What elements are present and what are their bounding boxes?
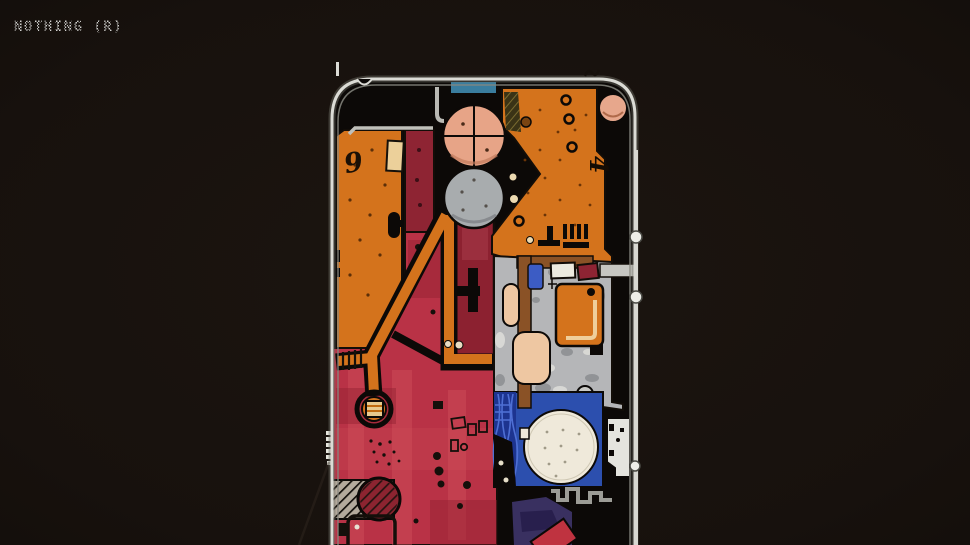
center-maroon-block: [456, 216, 494, 356]
teal-bar: [450, 81, 497, 94]
selfie-camera-peach: [599, 94, 627, 122]
rail-ball: [630, 231, 642, 243]
nothing-teaser-image: NOTHING (R): [0, 0, 970, 545]
rail-ball: [630, 291, 642, 303]
flex-connector: [357, 392, 391, 426]
handwritten-4: 4: [584, 156, 613, 173]
nothing-logo: NOTHING (R): [14, 19, 123, 35]
antenna-tick: [336, 62, 339, 76]
lens-gray-circle: [444, 168, 504, 228]
phone-internals-sketch: 9: [0, 0, 970, 545]
rail-ball: [630, 461, 640, 471]
right-orange-pcb: 4: [492, 88, 613, 262]
maroon-strip: [405, 130, 434, 232]
nothing-logo-text: NOTHING (R): [14, 19, 123, 35]
